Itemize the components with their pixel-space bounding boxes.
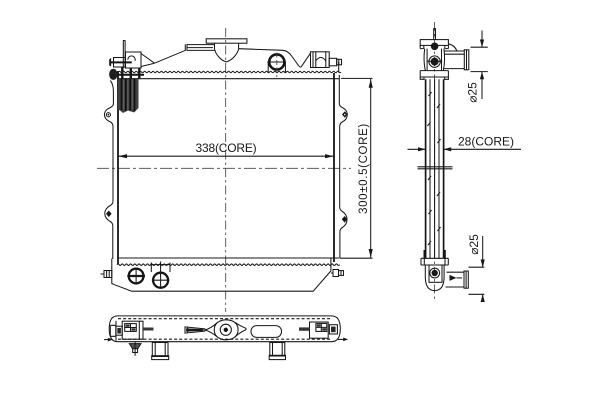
svg-text:338(CORE): 338(CORE) xyxy=(196,141,257,155)
svg-text:300±0.5(CORE): 300±0.5(CORE) xyxy=(358,123,370,214)
svg-text:28(CORE): 28(CORE) xyxy=(458,135,514,149)
svg-text:⌀25: ⌀25 xyxy=(466,82,480,103)
svg-text:⌀25: ⌀25 xyxy=(467,234,481,255)
